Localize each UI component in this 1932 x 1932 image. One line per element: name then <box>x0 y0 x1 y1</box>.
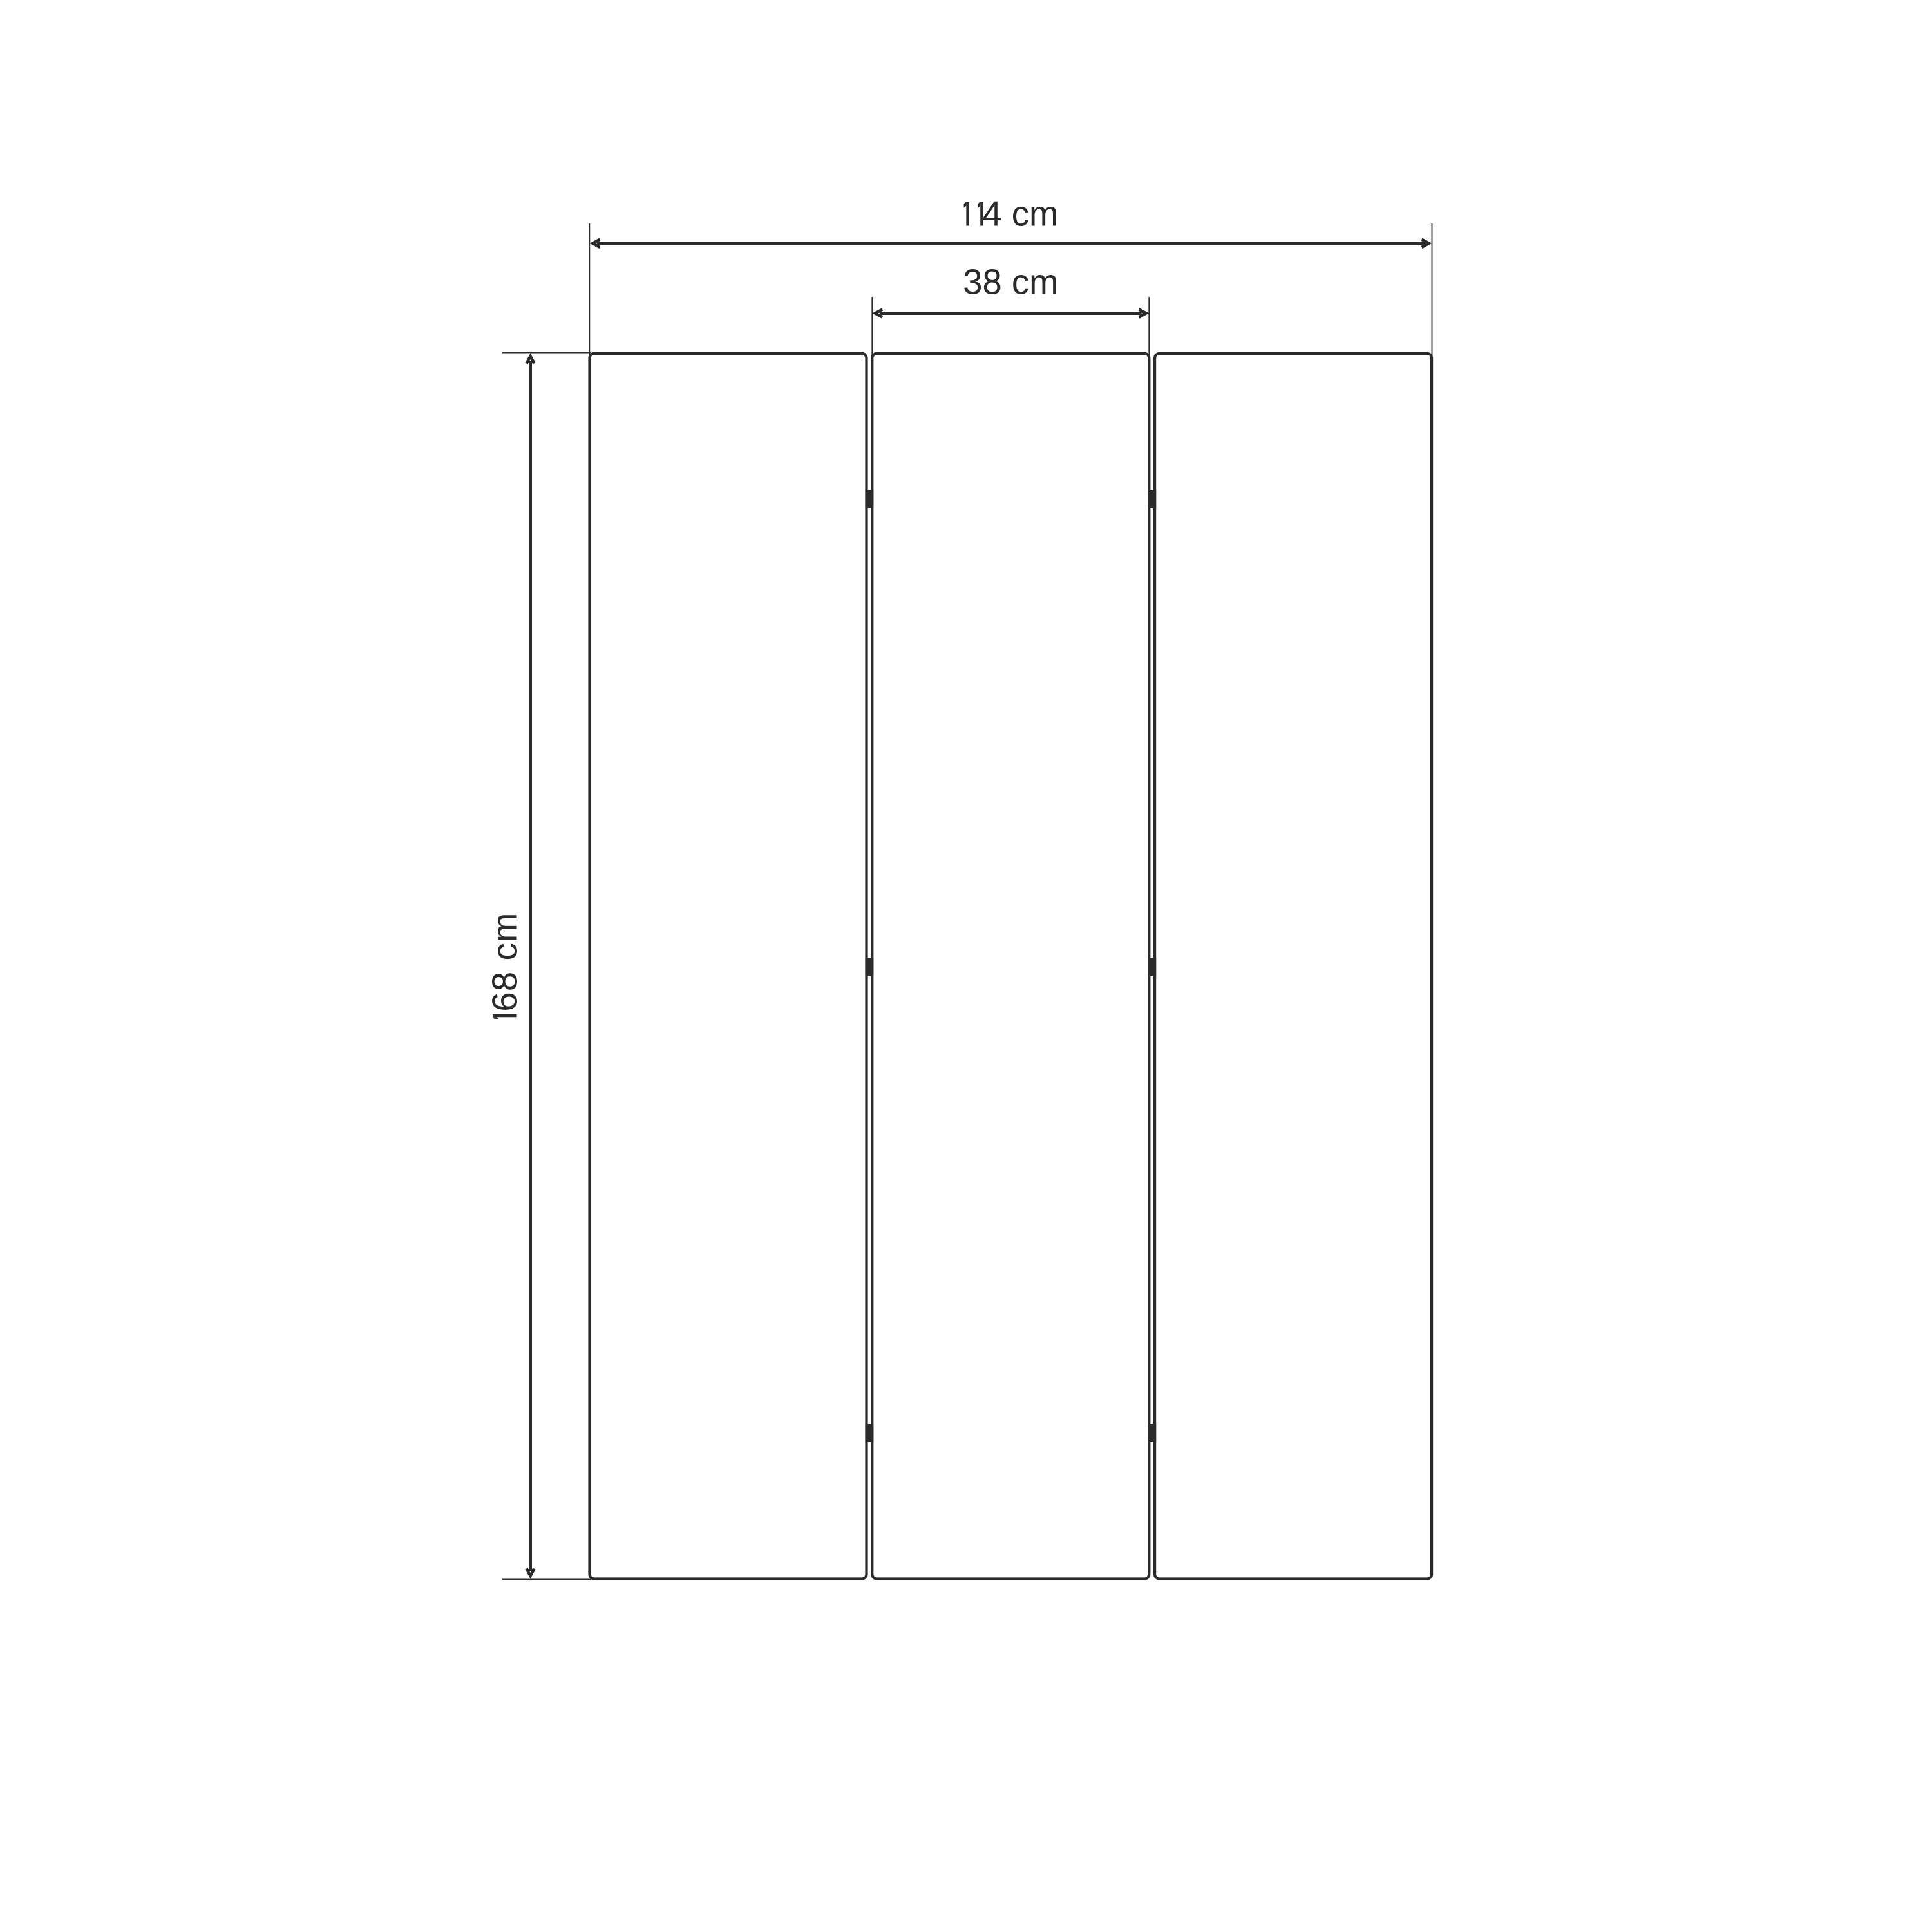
svg-text:4 cm: 4 cm <box>982 194 1058 234</box>
svg-text:38 cm: 38 cm <box>963 263 1058 302</box>
svg-text:68 cm: 68 cm <box>486 912 525 1011</box>
